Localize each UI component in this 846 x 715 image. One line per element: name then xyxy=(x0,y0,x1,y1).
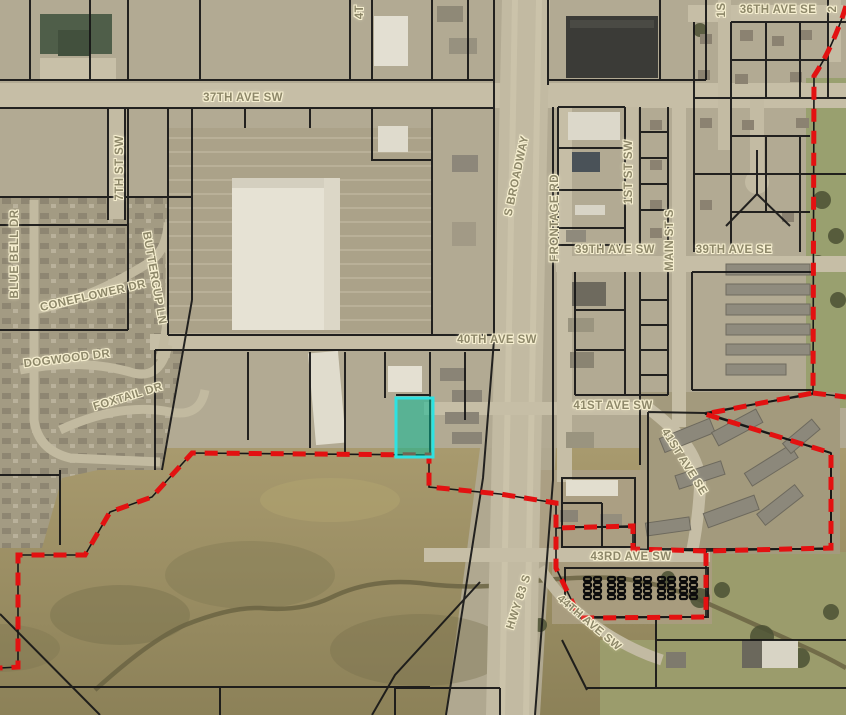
street-label-40th-ave-sw: 40TH AVE SW xyxy=(457,334,537,346)
street-label-1st-st-sw: 1ST ST SW xyxy=(623,140,635,204)
aerial-basemap xyxy=(0,0,846,715)
street-label-37th-ave-sw: 37TH AVE SW xyxy=(203,92,283,104)
street-label-39th-ave-se: 39TH AVE SE xyxy=(696,244,773,256)
street-label-7th-st-sw: 7TH ST SW xyxy=(114,136,126,201)
street-label-2nd-st-se-partial: 2 xyxy=(827,6,839,13)
street-label-1st-st-se-partial: 1S xyxy=(716,3,728,18)
street-label-41st-ave-sw: 41ST AVE SW xyxy=(573,400,652,412)
street-label-43rd-ave-sw: 43RD AVE SW xyxy=(590,551,671,563)
highlighted-parcel[interactable] xyxy=(396,398,433,457)
street-label-blue-bell-dr: BLUE BELL DR xyxy=(9,210,21,299)
street-label-36th-ave-se: 36TH AVE SE xyxy=(740,4,817,16)
street-label-4th-st-partial: 4T xyxy=(354,5,366,19)
street-label-39th-ave-sw: 39TH AVE SW xyxy=(575,244,655,256)
street-label-main-st-s: MAIN ST S xyxy=(664,209,676,271)
street-label-frontage-rd: FRONTAGE RD xyxy=(549,174,561,262)
map-canvas[interactable]: 37TH AVE SW 4T 36TH AVE SE 1S 2 S BROADW… xyxy=(0,0,846,715)
